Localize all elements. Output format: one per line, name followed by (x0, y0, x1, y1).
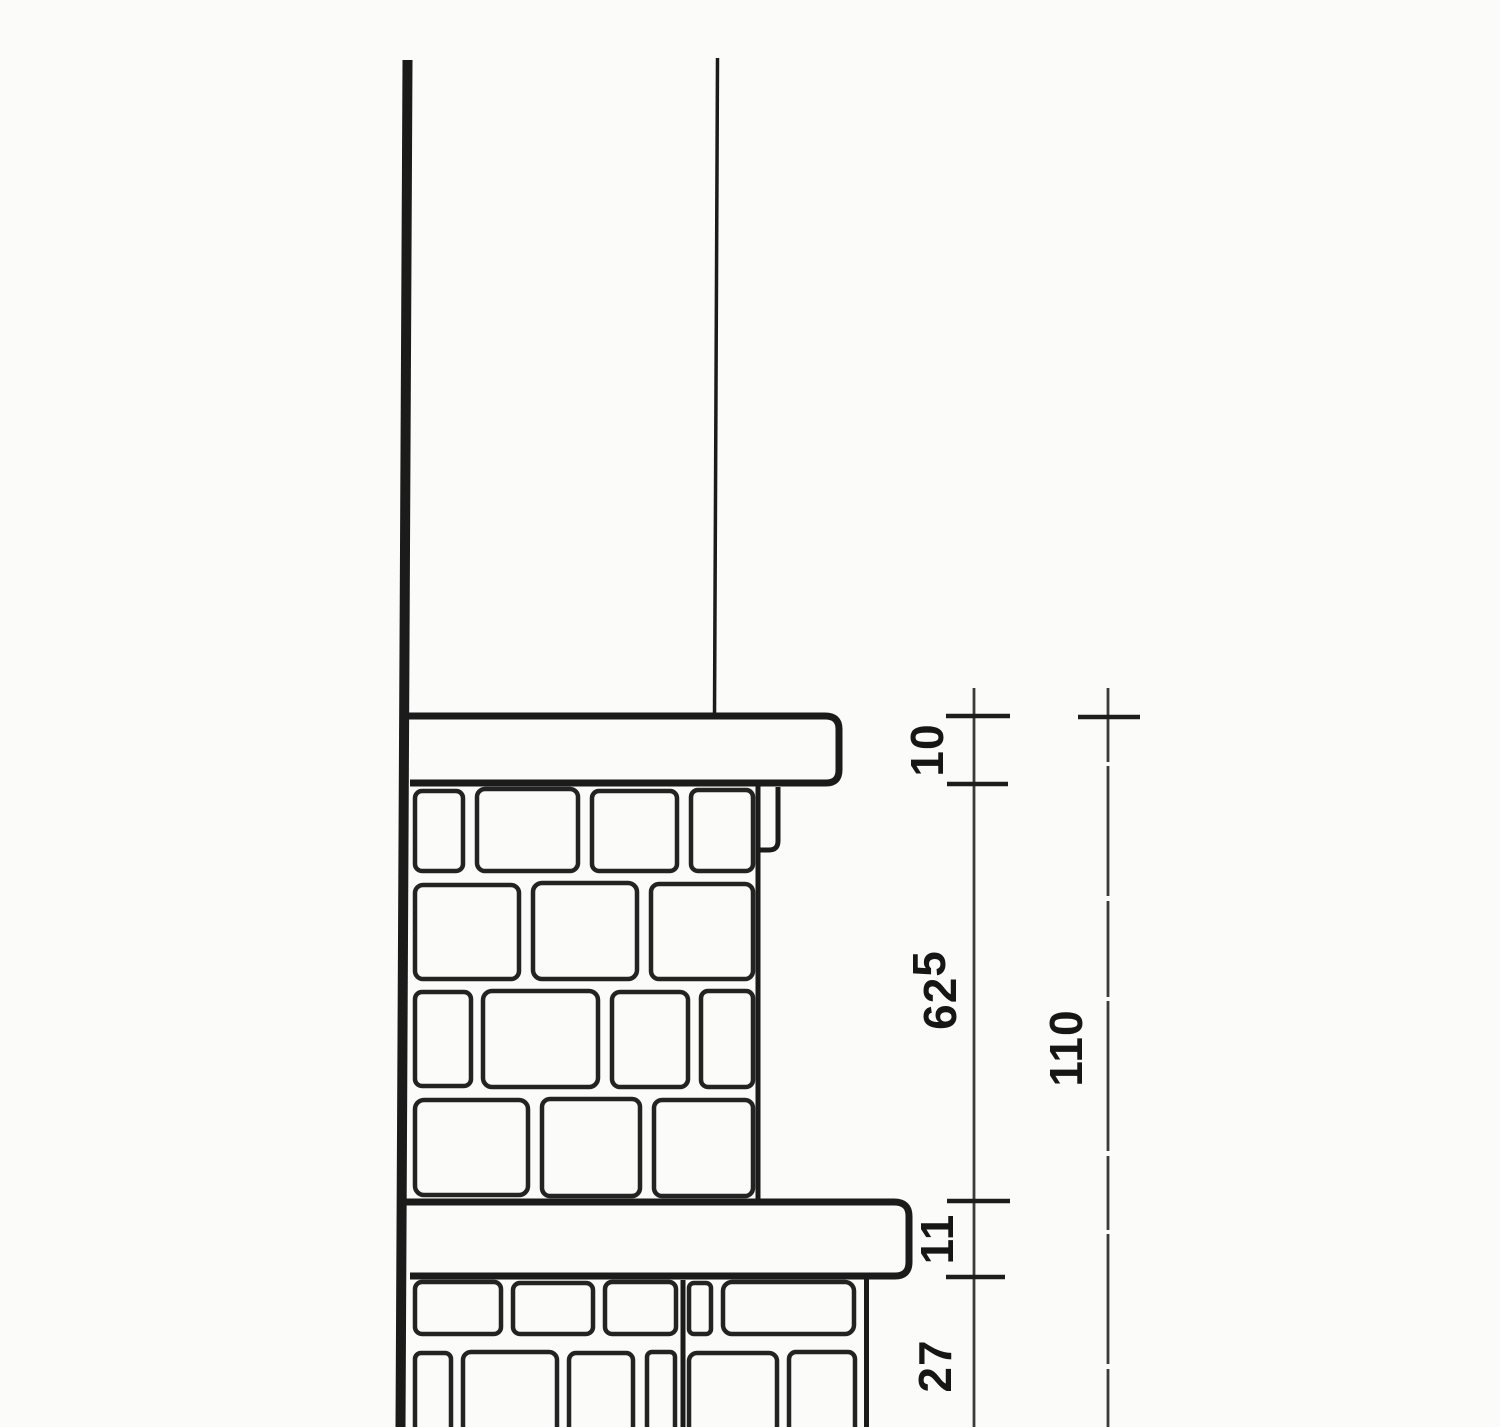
masonry-stone (415, 1282, 501, 1334)
wall-back-heavy-line (401, 60, 408, 1427)
masonry-stone (533, 883, 637, 979)
coping-drip-edge (760, 787, 778, 850)
dimension-label-lower-masonry: 27 (909, 1339, 961, 1392)
masonry-stone (415, 992, 471, 1086)
masonry-stone (415, 1353, 451, 1427)
upper-masonry (415, 789, 753, 1196)
masonry-stone (689, 1283, 711, 1334)
masonry-stone (612, 992, 688, 1087)
masonry-stone (647, 1352, 675, 1427)
dimension-label-band: 11 (911, 1214, 963, 1265)
masonry-stone (477, 789, 578, 871)
masonry-stone (569, 1353, 633, 1427)
dimension-chain-inner: 10 625 11 27 (901, 688, 1010, 1427)
lower-masonry (415, 1282, 855, 1427)
masonry-stone (691, 790, 753, 871)
masonry-stone (463, 1352, 557, 1427)
coping-stone-outline (403, 716, 839, 783)
masonry-stone (415, 1100, 528, 1195)
wall-section-figure: 10 625 11 27 110 (0, 0, 1500, 1427)
masonry-stone (723, 1282, 854, 1334)
band-course-outline (403, 1202, 909, 1276)
masonry-stone (689, 1353, 777, 1427)
dimension-label-superscript: 5 (903, 950, 955, 977)
dimension-chain-overall: 110 (1040, 688, 1140, 1427)
masonry-stone (651, 884, 753, 979)
reference-line (715, 58, 718, 715)
masonry-stone (415, 885, 519, 979)
dimension-label-main: 62 (914, 977, 966, 1030)
masonry-stone (483, 991, 598, 1087)
masonry-stone (415, 791, 463, 871)
masonry-stone (789, 1352, 855, 1427)
masonry-stone (654, 1100, 753, 1196)
masonry-stone (605, 1282, 676, 1334)
masonry-stone (592, 791, 677, 871)
dimension-label-overall: 110 (1040, 1009, 1092, 1086)
masonry-stone (701, 991, 753, 1087)
scanned-wall-section-drawing: 10 625 11 27 110 (0, 0, 1500, 1427)
masonry-stone (542, 1099, 640, 1196)
masonry-stone (513, 1283, 593, 1334)
dimension-label-upper-masonry: 625 (903, 950, 966, 1030)
dimension-label-coping: 10 (901, 723, 953, 776)
